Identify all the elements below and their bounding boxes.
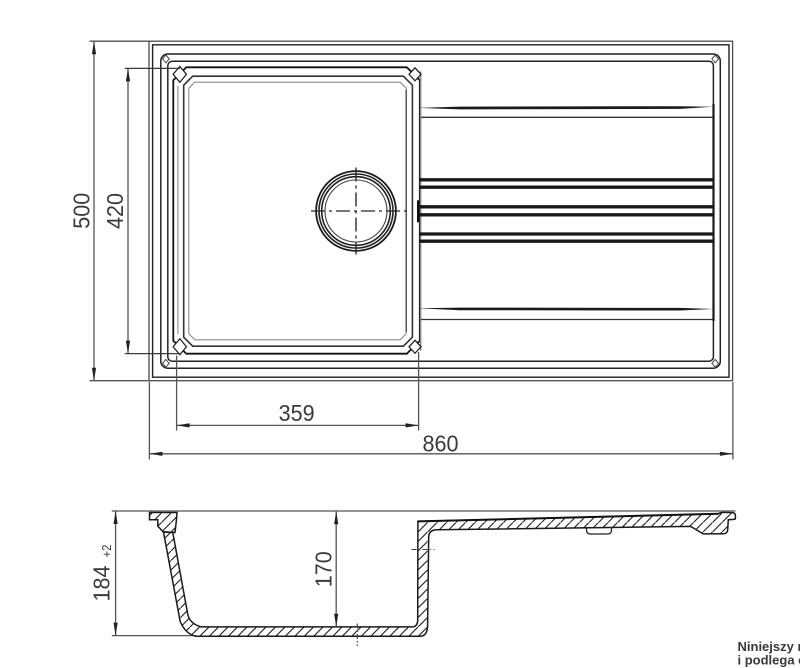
svg-text:Niniejszy rysunek: Niniejszy rysunek — [738, 639, 800, 654]
svg-text:184: 184 — [89, 566, 115, 602]
svg-text:170: 170 — [311, 551, 337, 587]
svg-text:860: 860 — [423, 431, 459, 457]
svg-text:500: 500 — [68, 193, 94, 229]
svg-text:420: 420 — [102, 193, 128, 229]
svg-text:+2: +2 — [99, 545, 114, 558]
svg-text:i podlega ochronie: i podlega ochronie — [738, 653, 800, 668]
svg-text:359: 359 — [279, 400, 315, 426]
